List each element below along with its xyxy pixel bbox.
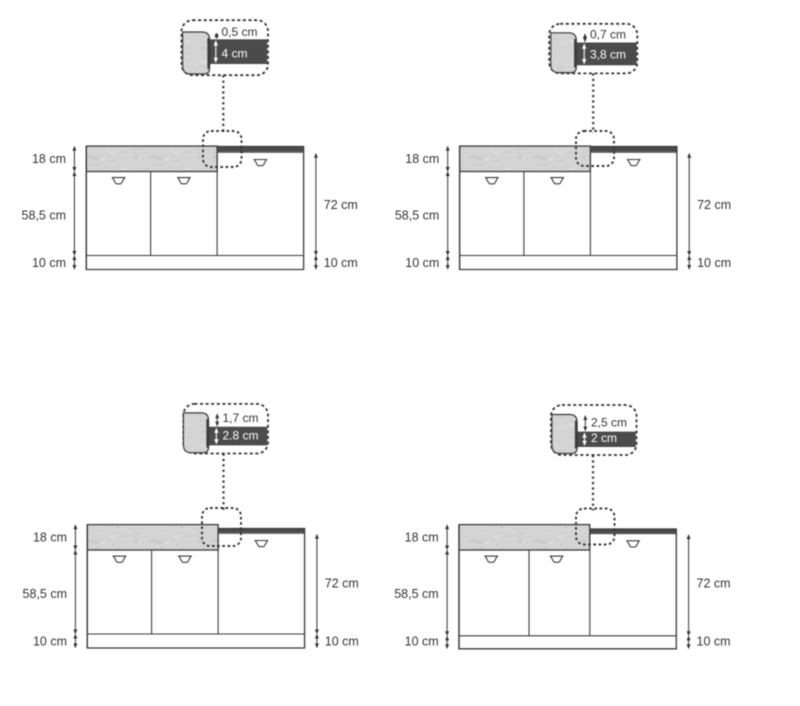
- svg-text:18 cm: 18 cm: [405, 530, 439, 544]
- svg-text:58,5 cm: 58,5 cm: [23, 587, 67, 601]
- svg-text:10 cm: 10 cm: [405, 635, 439, 649]
- svg-text:10 cm: 10 cm: [324, 256, 358, 270]
- svg-text:10 cm: 10 cm: [697, 256, 731, 270]
- svg-text:10 cm: 10 cm: [325, 635, 359, 649]
- svg-text:72 cm: 72 cm: [325, 577, 359, 591]
- svg-text:72 cm: 72 cm: [697, 198, 731, 212]
- svg-text:1,7 cm: 1,7 cm: [223, 411, 259, 425]
- svg-text:3,8 cm: 3,8 cm: [590, 47, 626, 61]
- svg-text:2,5 cm: 2,5 cm: [591, 415, 627, 429]
- svg-text:2 cm: 2 cm: [591, 431, 617, 445]
- svg-text:10 cm: 10 cm: [697, 635, 731, 649]
- svg-text:10 cm: 10 cm: [32, 256, 66, 270]
- svg-text:18 cm: 18 cm: [32, 152, 66, 166]
- svg-text:18 cm: 18 cm: [33, 530, 67, 544]
- svg-text:4 cm: 4 cm: [222, 46, 248, 60]
- svg-text:58,5 cm: 58,5 cm: [394, 587, 438, 601]
- svg-text:10 cm: 10 cm: [33, 635, 67, 649]
- svg-text:10 cm: 10 cm: [405, 256, 439, 270]
- svg-text:72 cm: 72 cm: [697, 577, 731, 591]
- svg-text:2.8 cm: 2.8 cm: [223, 428, 259, 442]
- svg-text:0,7 cm: 0,7 cm: [590, 27, 626, 41]
- svg-text:58,5 cm: 58,5 cm: [22, 209, 66, 223]
- svg-text:58,5 cm: 58,5 cm: [395, 209, 439, 223]
- svg-text:0,5 cm: 0,5 cm: [222, 25, 258, 39]
- svg-text:72 cm: 72 cm: [324, 198, 358, 212]
- svg-text:18 cm: 18 cm: [405, 152, 439, 166]
